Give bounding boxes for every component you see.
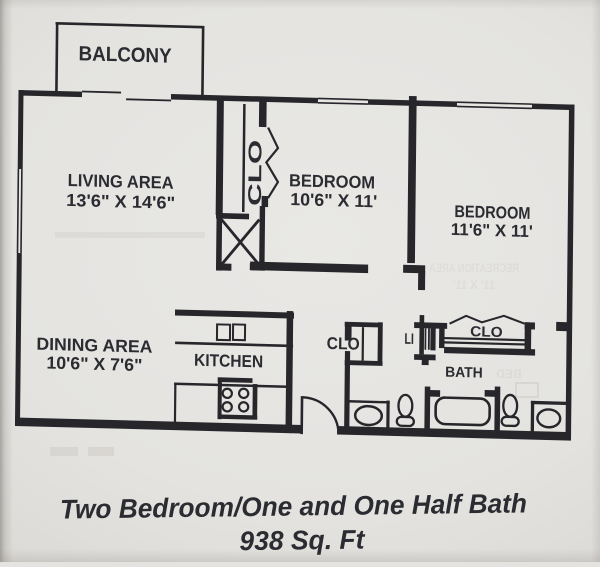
svg-text:LI: LI xyxy=(404,331,414,348)
svg-text:LIVING AREA: LIVING AREA xyxy=(68,170,175,193)
svg-text:10'6" X 7'6": 10'6" X 7'6" xyxy=(46,353,142,376)
svg-text:CLO: CLO xyxy=(244,140,266,207)
svg-text:CLO: CLO xyxy=(470,324,503,341)
svg-text:RECREATION AREA: RECREATION AREA xyxy=(429,263,519,275)
svg-text:10'6" X 11': 10'6" X 11' xyxy=(290,189,377,211)
svg-text:Two Bedroom/One and One Half B: Two Bedroom/One and One Half Bath xyxy=(60,488,527,524)
svg-text:11'6" X 11': 11'6" X 11' xyxy=(451,220,533,241)
svg-text:KITCHEN: KITCHEN xyxy=(194,350,263,372)
svg-text:11' X 11': 11' X 11' xyxy=(453,280,495,292)
svg-text:BATH: BATH xyxy=(445,365,483,382)
svg-text:BED: BED xyxy=(496,367,522,381)
svg-text:CLO: CLO xyxy=(327,334,360,354)
svg-text:13'6" X 14'6": 13'6" X 14'6" xyxy=(66,190,175,213)
svg-text:BALCONY: BALCONY xyxy=(79,42,173,67)
svg-text:938 Sq. Ft: 938 Sq. Ft xyxy=(239,525,365,557)
